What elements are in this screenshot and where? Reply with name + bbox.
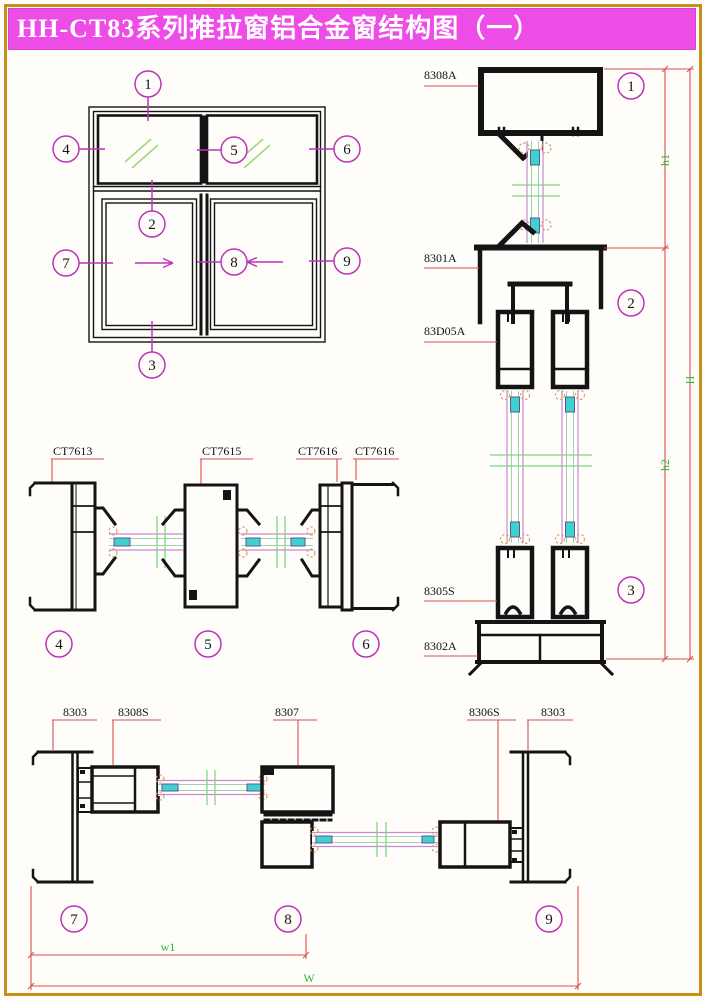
label-83D05A: 83D05A <box>424 324 466 338</box>
label-CT7616-a: CT7616 <box>298 444 337 458</box>
dim-h1: h1 <box>658 154 672 166</box>
callout-9: 9 <box>334 248 360 274</box>
lower-glass-run <box>310 822 440 857</box>
svg-text:4: 4 <box>62 142 70 158</box>
vertical-section-svg: 8308A 8301A 83D05A 8305S 8302A 1 2 3 h1 … <box>420 55 706 705</box>
callout-8-section: 8 <box>275 906 301 932</box>
horizontal-sections-diagram: CT7613 CT7615 CT7616 CT7616 <box>25 440 410 658</box>
mid-assembly-8307 <box>262 767 333 867</box>
label-8301A: 8301A <box>424 251 457 265</box>
callout-9-section: 9 <box>536 906 562 932</box>
profile-labels: CT7613 CT7615 CT7616 CT7616 <box>51 444 399 484</box>
svg-text:9: 9 <box>545 912 553 928</box>
callout-7-section: 7 <box>61 906 87 932</box>
upper-glass-run <box>156 770 267 805</box>
callout-6-section: 6 <box>353 631 379 657</box>
bottom-section-diagram: 8303 8308S 8307 8306S 8303 <box>25 700 685 995</box>
svg-text:5: 5 <box>230 143 238 159</box>
bottom-section-svg: 8303 8308S 8307 8306S 8303 <box>25 700 685 995</box>
horizontal-sections-svg: CT7613 CT7615 CT7616 CT7616 <box>25 440 410 658</box>
left-jamb-profile <box>30 483 115 610</box>
vertical-section-labels: 8308A 8301A 83D05A 8305S 8302A <box>424 68 497 656</box>
page-title: HH-CT83系列推拉窗铝合金窗结构图（一） <box>8 8 696 50</box>
height-dimension-lines: h1 h2 H <box>604 66 697 662</box>
elevation-sliding-sashes <box>102 195 317 334</box>
label-8308A: 8308A <box>424 68 457 82</box>
callout-4-section: 4 <box>46 631 72 657</box>
label-8303-left: 8303 <box>63 705 87 719</box>
sash-bottom-profiles-8305S <box>498 548 587 617</box>
svg-text:2: 2 <box>627 296 635 312</box>
label-8305S: 8305S <box>424 584 455 598</box>
lower-glass-units <box>490 391 592 544</box>
svg-text:7: 7 <box>62 256 70 272</box>
svg-text:7: 7 <box>70 912 78 928</box>
dim-h2: h2 <box>658 459 672 471</box>
svg-text:3: 3 <box>148 358 156 374</box>
svg-text:2: 2 <box>148 217 156 233</box>
svg-text:1: 1 <box>627 79 635 95</box>
dim-W: W <box>303 971 315 985</box>
sash-8306S <box>440 822 523 867</box>
dim-H: H <box>683 375 697 384</box>
label-8308S: 8308S <box>118 705 149 719</box>
label-CT7613: CT7613 <box>53 444 92 458</box>
callout-2: 2 <box>139 211 165 237</box>
width-dimension-lines: w1 W <box>28 886 581 990</box>
svg-text:8: 8 <box>284 912 292 928</box>
svg-text:4: 4 <box>55 637 63 653</box>
callout-1: 1 <box>135 71 161 97</box>
label-CT7615: CT7615 <box>202 444 241 458</box>
label-8303-right: 8303 <box>541 705 565 719</box>
label-8306S: 8306S <box>469 705 500 719</box>
callout-2-section: 2 <box>618 290 644 316</box>
callout-4: 4 <box>53 136 79 162</box>
callout-6: 6 <box>334 136 360 162</box>
callout-8: 8 <box>221 249 247 275</box>
label-8302A: 8302A <box>424 639 457 653</box>
svg-text:6: 6 <box>362 637 370 653</box>
right-sash-and-jamb-profile <box>302 483 398 610</box>
svg-text:6: 6 <box>343 142 351 158</box>
elevation-svg: 1 2 3 4 5 6 7 8 9 <box>25 58 410 393</box>
svg-text:3: 3 <box>627 583 635 599</box>
dim-w1: w1 <box>161 940 176 954</box>
label-8307: 8307 <box>275 705 299 719</box>
svg-text:8: 8 <box>230 255 238 271</box>
svg-text:1: 1 <box>144 77 152 93</box>
elevation-diagram: 1 2 3 4 5 6 7 8 9 <box>25 58 410 393</box>
callout-1-section: 1 <box>618 73 644 99</box>
svg-text:5: 5 <box>204 637 212 653</box>
callout-3: 3 <box>139 352 165 378</box>
sill-profile-8302A <box>470 622 612 674</box>
glass-run-left <box>109 516 183 568</box>
callout-3-section: 3 <box>618 577 644 603</box>
callout-5-section: 5 <box>195 631 221 657</box>
sash-8308S <box>92 767 158 812</box>
callout-7: 7 <box>53 250 79 276</box>
vertical-section-diagram: 8308A 8301A 83D05A 8305S 8302A 1 2 3 h1 … <box>420 55 706 705</box>
callout-5: 5 <box>221 137 247 163</box>
label-CT7616-b: CT7616 <box>355 444 394 458</box>
left-jamb-8303 <box>33 752 92 882</box>
svg-text:9: 9 <box>343 254 351 270</box>
